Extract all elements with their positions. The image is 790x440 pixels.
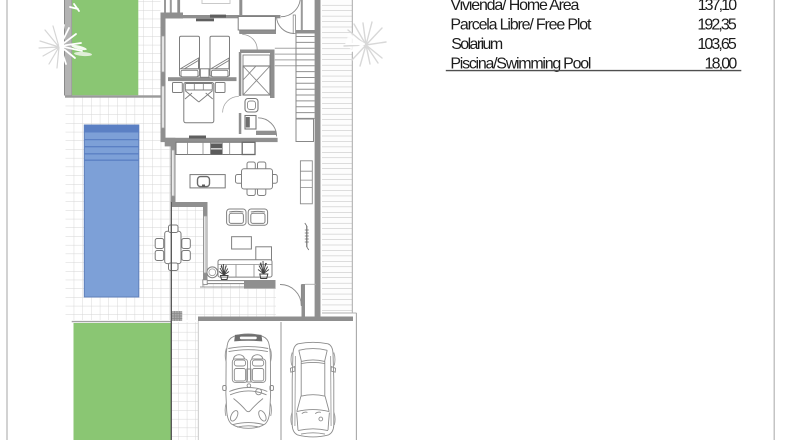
svg-text:Vivienda/ Home Area: Vivienda/ Home Area: [450, 0, 579, 14]
svg-text:137,10: 137,10: [698, 0, 738, 14]
svg-text:Solarium: Solarium: [451, 36, 503, 53]
svg-text:103,65: 103,65: [697, 36, 736, 53]
svg-text:192,35: 192,35: [697, 17, 736, 34]
svg-text:Parcela Libre/ Free Plot: Parcela Libre/ Free Plot: [450, 17, 592, 34]
